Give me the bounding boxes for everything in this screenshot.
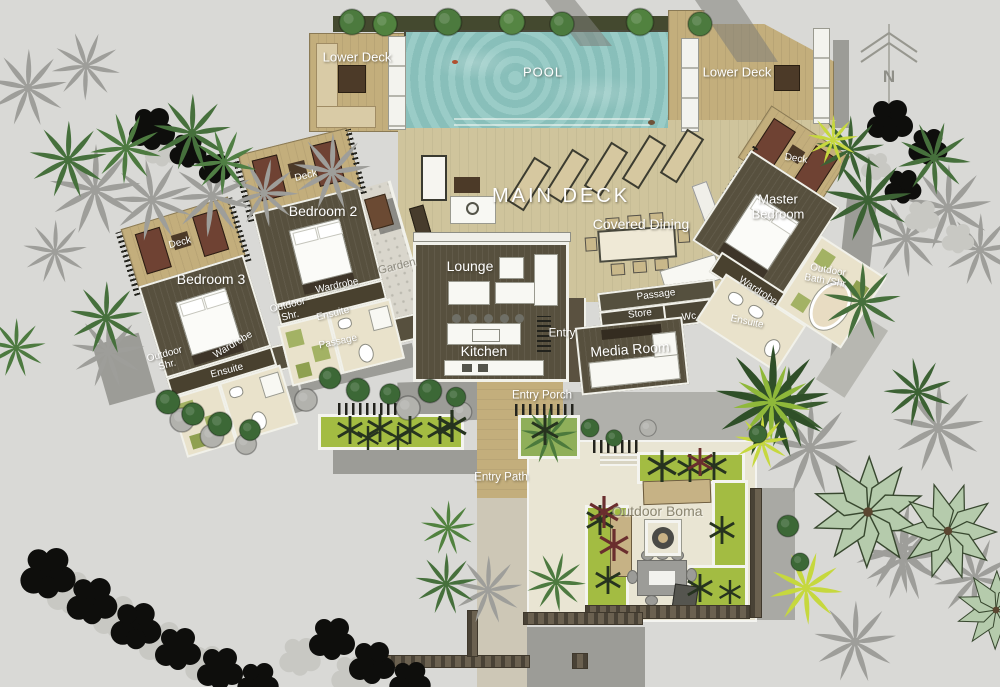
bar-stool [500,314,509,323]
shower-tray [368,305,393,331]
basin [228,385,245,400]
bedroom2-deck-lounger [252,154,287,201]
label-covered-dining: Covered Dining [593,217,690,233]
lounge-table [499,257,524,279]
site-plan: N [0,0,1000,687]
boma-fire-pit [645,520,681,556]
kitchen-counter [444,360,544,376]
north-arrow-icon: N [856,16,922,116]
north-letter: N [883,67,895,86]
bar-stool [468,314,477,323]
label-line: Master [752,192,805,207]
lounge-sofa [448,281,490,305]
bar-stool [515,314,524,323]
boma-steps [600,452,640,466]
stone-gate-post [572,653,588,669]
shower-tile [189,432,206,449]
sofa-left-deck-horizontal [316,106,376,128]
deck-side-table [454,177,480,193]
pool-koi [452,60,458,64]
label-lower-deck-left: Lower Deck [323,51,392,66]
dining-chair [632,260,647,273]
label-main-deck: MAIN DECK [492,185,630,207]
boma-chair [627,570,638,584]
label-line: Bedroom [752,207,805,222]
pillow [292,227,318,245]
label-entry: Entry [549,328,576,341]
deck-table-left [338,65,366,93]
planter-bed-west [318,414,464,450]
label-master-bedroom: Master Bedroom [752,192,805,221]
shadow-pool-deck-right [833,40,849,128]
label-bedroom2: Bedroom 2 [289,204,357,220]
shadow-bedroom3-side [92,333,155,406]
pillow [179,297,206,316]
toilet [761,336,784,360]
island-sink [472,329,500,342]
shadow-boma-right [757,488,795,620]
pool-koi-2 [648,120,655,125]
boma-bed-right [712,480,748,572]
stone-wall-path [523,612,643,625]
bedroom2-deck-lounger [310,140,345,187]
label-wc: Wc [681,311,697,324]
kitchen-appliance [462,364,472,372]
pillow [317,221,343,239]
fire-pit-ring [652,527,674,549]
shower-tile [204,412,224,432]
label-entry-porch: Entry Porch [512,390,572,403]
label-outdoor-boma: Outdoor Boma [611,504,702,520]
deck-lounger-white [421,155,447,201]
label-lower-deck-right: Lower Deck [703,66,772,81]
deck-parasol [466,202,479,215]
bar-stool [484,314,493,323]
toilet [357,342,376,364]
shower-tile [177,400,197,420]
bath-tile [790,292,811,313]
pool-pier-right [681,38,699,132]
light-palm-group [811,457,1000,649]
bar-stool [452,314,461,323]
shower-tray [259,371,285,398]
kitchen-appliance [478,364,488,372]
label-kitchen: Kitchen [461,344,508,360]
stone-wall-boma-right [750,488,762,618]
bath-tile [848,280,869,301]
pillow [203,290,230,309]
lounge-chaise [534,254,558,306]
deck-table-right [774,65,800,91]
bedroom3-deck-lounger [192,209,229,257]
boma-fence [593,440,641,453]
planter-fence [338,403,420,415]
dining-chair [585,237,598,252]
boma-chair [686,568,697,582]
label-bedroom3: Bedroom 3 [177,272,245,288]
basin [337,316,353,330]
label-lounge: Lounge [447,259,494,275]
boma-table-top [649,571,675,585]
label-pool: POOL [523,66,563,81]
lounge-roof-edge [413,232,571,242]
toilet [249,409,269,432]
stone-wall-post [467,610,478,657]
stone-wall-lower [380,655,530,668]
dining-chair [611,263,626,276]
porch-planter [518,415,580,459]
paving-below-media [560,392,765,446]
boma-bench-left [610,515,632,577]
boma-bench-top [643,479,712,505]
shower-tile [295,362,312,379]
pool [404,30,681,136]
bedroom3-deck-lounger [135,227,172,275]
kitchen-island [447,323,521,345]
basin [726,289,746,308]
shadow-planter-bed [333,450,481,474]
shower-tile [285,329,304,348]
label-entry-path: Entry Path [474,472,528,485]
fire-pit-center [658,533,668,543]
deck-pier-far-right [813,28,830,124]
